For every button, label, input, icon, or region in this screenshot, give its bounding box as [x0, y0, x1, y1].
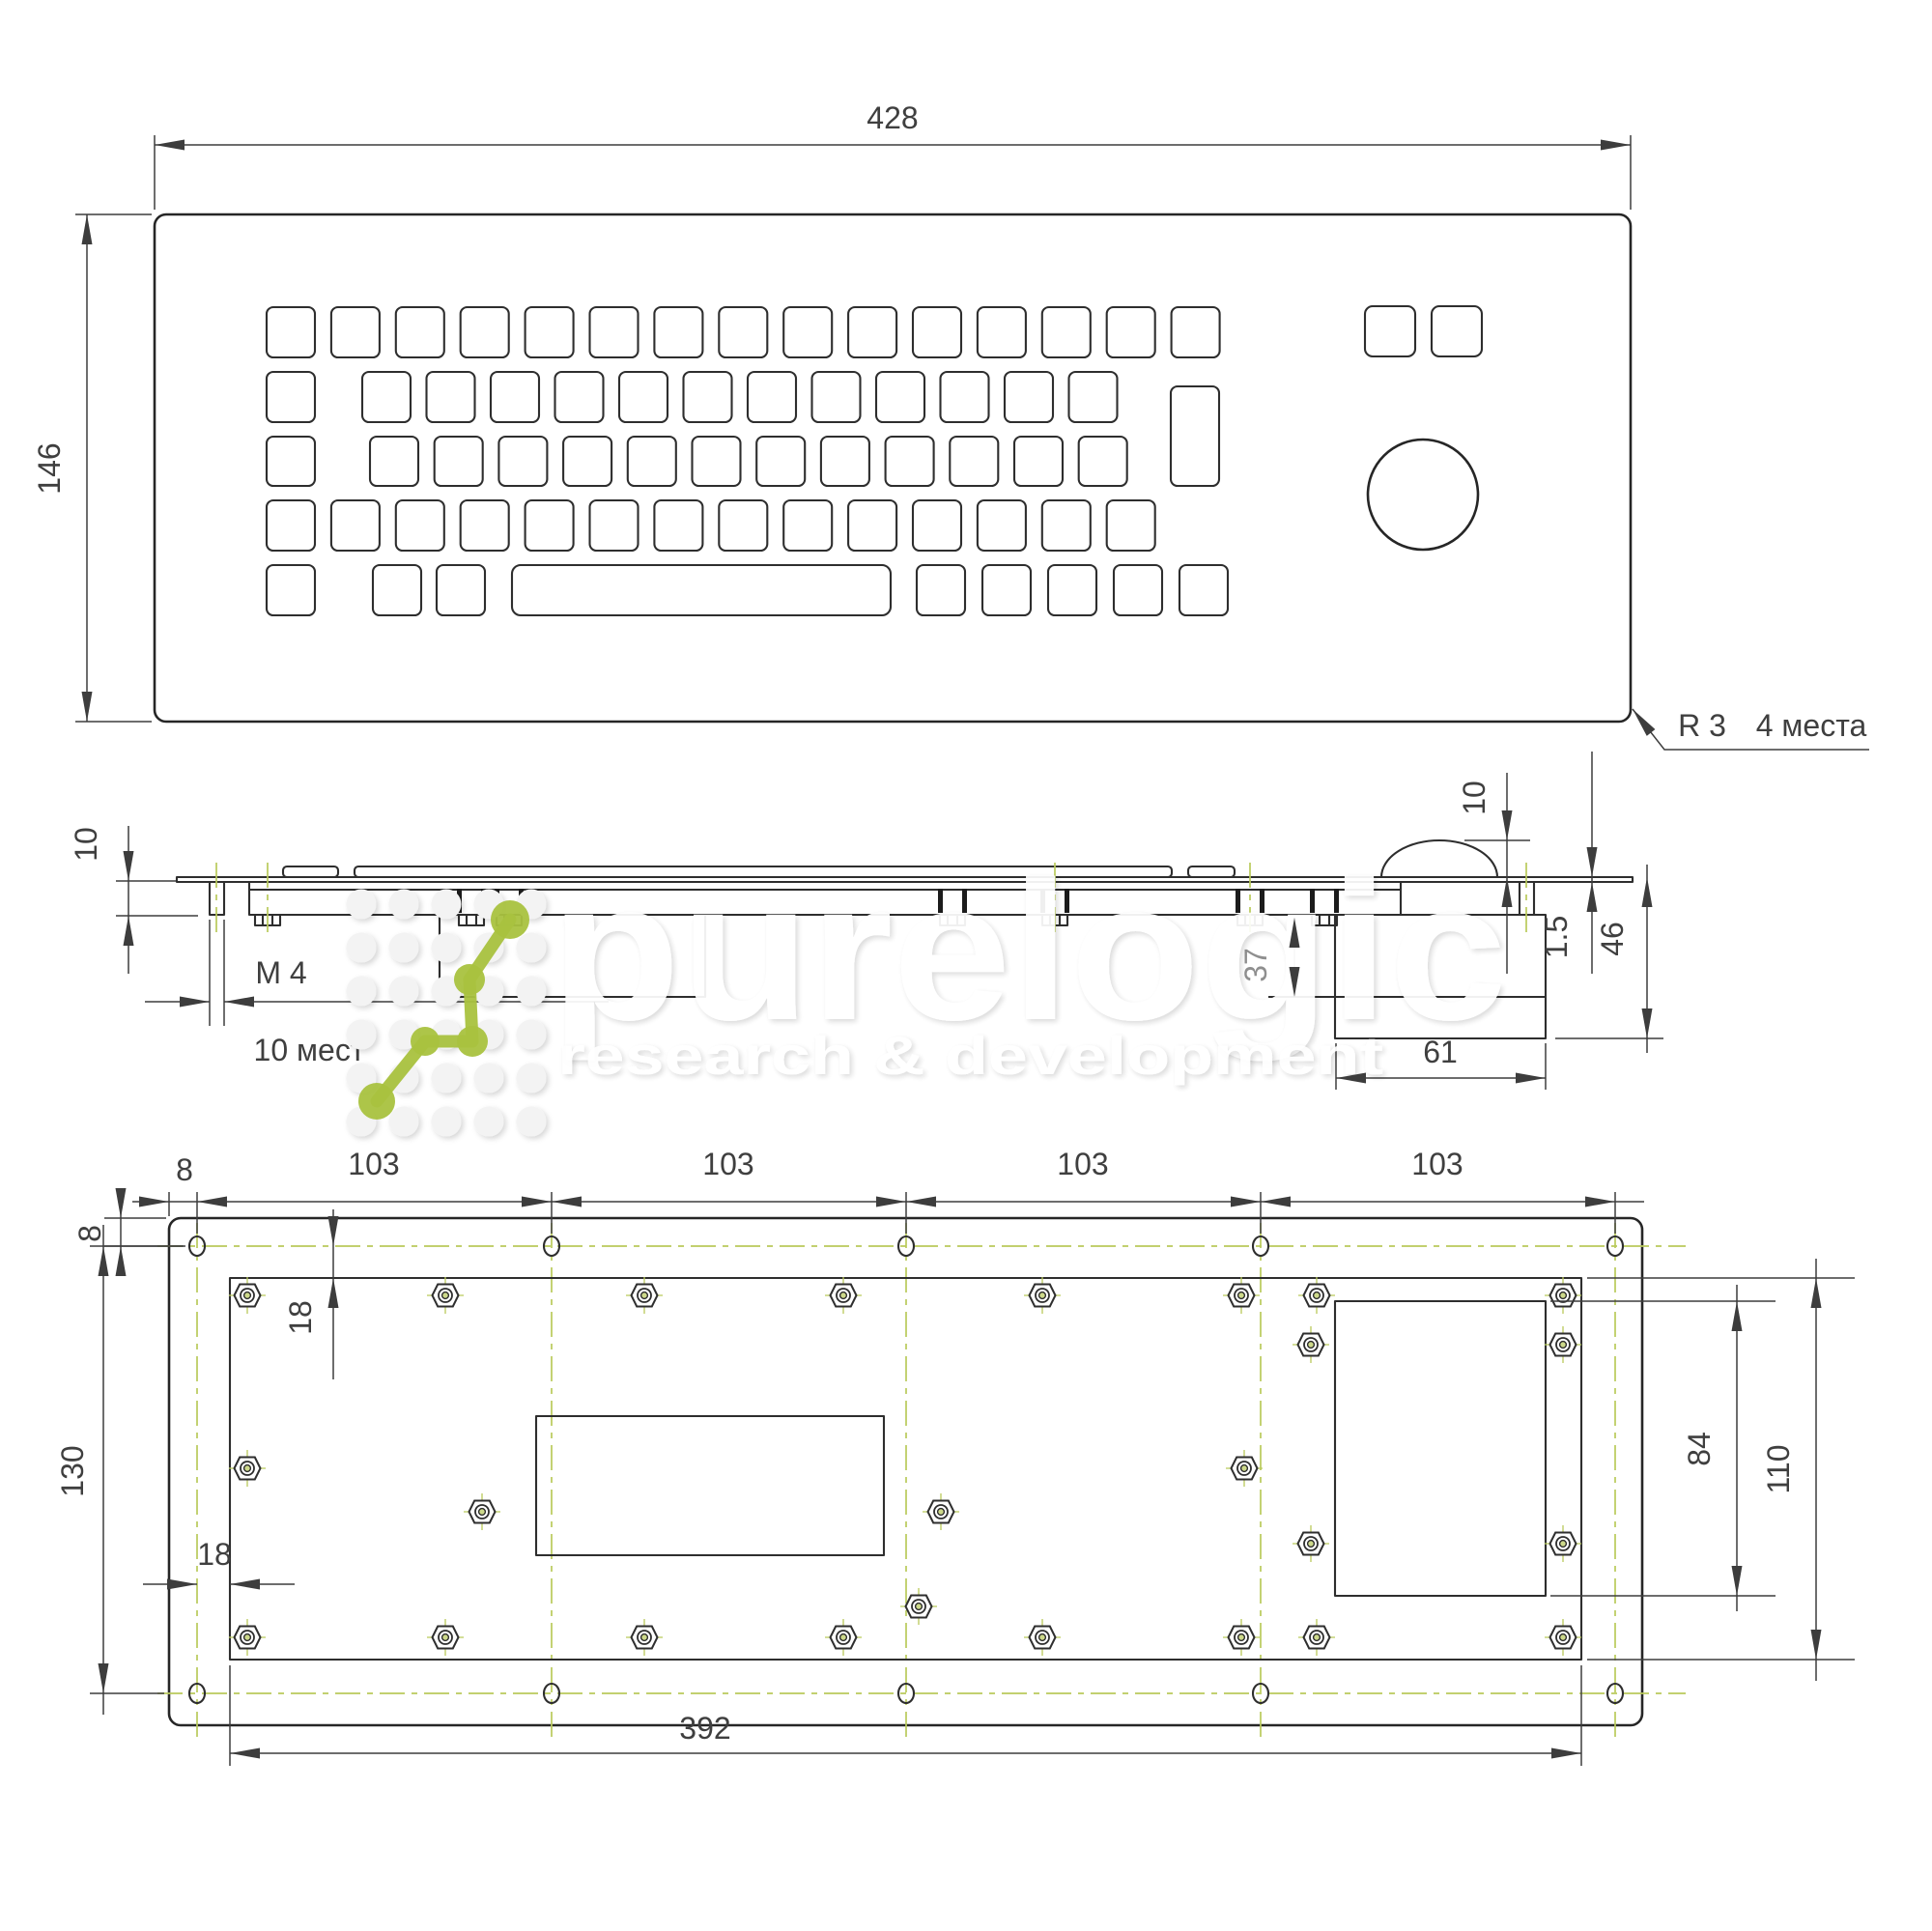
dim-label-10-left: 10	[69, 827, 103, 862]
dimension-arrowhead	[328, 1216, 339, 1246]
watermark-dot	[347, 977, 377, 1007]
key	[1079, 437, 1127, 486]
dimension-arrowhead	[552, 1197, 582, 1207]
dim-bottom-plate-offset-v: 18	[283, 1209, 333, 1379]
dimension-arrowhead	[1601, 140, 1631, 151]
key	[876, 372, 924, 422]
dim-bottom-plate-offset-h: 18	[143, 1537, 295, 1584]
hex-nut-center	[442, 1292, 449, 1299]
hex-nut-center	[442, 1634, 449, 1641]
watermark-dot	[517, 1107, 547, 1137]
hex-nut-center	[1560, 1541, 1567, 1548]
key	[362, 372, 411, 422]
key	[812, 372, 861, 422]
dimension-arrowhead	[167, 1579, 197, 1590]
dim-label-m4: M 4	[255, 955, 306, 990]
key	[396, 500, 444, 551]
key	[1172, 307, 1220, 357]
key	[1042, 500, 1091, 551]
key	[491, 372, 539, 422]
dimension-arrowhead	[124, 916, 134, 946]
watermark-chain-dot	[454, 964, 485, 995]
dimension-arrowhead	[1732, 1301, 1743, 1331]
dim-label-1-5: 1.5	[1539, 916, 1574, 958]
dim-label-103-1: 103	[348, 1147, 399, 1181]
hex-nut-center	[1560, 1292, 1567, 1299]
dimension-arrowhead	[328, 1278, 339, 1308]
dimension-arrowhead	[1642, 877, 1653, 907]
spacebar-key	[512, 565, 891, 615]
dimension-arrowhead	[230, 1579, 260, 1590]
key	[917, 565, 965, 615]
dimension-arrowhead	[1587, 882, 1598, 912]
dim-front-height: 146	[32, 214, 152, 722]
hex-nut-center	[840, 1634, 847, 1641]
key	[331, 500, 380, 551]
rear-connector-box	[1335, 1301, 1546, 1596]
keyboard-keys	[267, 307, 1228, 615]
watermark-chain-dot	[411, 1027, 440, 1056]
key	[748, 372, 796, 422]
dim-side-frame-depth: 10	[69, 826, 198, 974]
watermark-dot	[347, 1020, 377, 1050]
trackball	[1368, 440, 1478, 550]
key	[1107, 500, 1155, 551]
bottom-view: 8 103 103 103 103 8 130 18 18	[55, 1147, 1855, 1766]
dim-side-sheet: 1.5	[1539, 752, 1592, 974]
hex-nut-center	[479, 1509, 486, 1516]
mouse-button-left	[1365, 306, 1415, 356]
hex-nut-center	[244, 1465, 251, 1472]
hex-nut-center	[1241, 1465, 1248, 1472]
key	[370, 437, 418, 486]
key	[719, 307, 767, 357]
key	[396, 307, 444, 357]
dim-front-width: 428	[155, 100, 1631, 210]
corner-radius-note: R 3 4 места	[1633, 708, 1869, 750]
key	[848, 307, 896, 357]
key	[978, 307, 1026, 357]
watermark-dot	[432, 1064, 462, 1093]
watermark-chain-dot	[358, 1083, 395, 1120]
key	[913, 307, 961, 357]
key	[427, 372, 475, 422]
dimension-arrowhead	[1502, 810, 1513, 840]
key	[590, 500, 639, 551]
mouse-button-right	[1432, 306, 1482, 356]
key	[783, 500, 832, 551]
key	[498, 437, 547, 486]
dimension-arrowhead	[180, 997, 210, 1008]
dimension-arrowhead	[99, 1663, 109, 1693]
key	[950, 437, 998, 486]
key	[941, 372, 989, 422]
key	[1114, 565, 1162, 615]
dim-label-18-horizontal: 18	[197, 1537, 232, 1572]
key	[267, 437, 315, 486]
key	[1107, 307, 1155, 357]
hex-nut-center	[244, 1634, 251, 1641]
watermark-dot	[474, 1064, 504, 1093]
dim-bottom-plate-height: 110	[1587, 1259, 1855, 1681]
hex-nut-center	[641, 1292, 648, 1299]
key	[526, 307, 574, 357]
key	[684, 372, 732, 422]
key	[461, 500, 509, 551]
dimension-arrowhead	[155, 140, 185, 151]
dim-label-8-top: 8	[176, 1152, 193, 1187]
watermark-dot	[474, 1107, 504, 1137]
key	[886, 437, 934, 486]
hex-nut-center	[1314, 1292, 1321, 1299]
key	[373, 565, 421, 615]
key	[1179, 565, 1228, 615]
key	[1048, 565, 1096, 615]
dim-label-428: 428	[867, 100, 918, 135]
dimension-arrowhead	[1516, 1073, 1546, 1084]
watermark-dot	[517, 977, 547, 1007]
hex-nut-center	[938, 1509, 945, 1516]
dim-label-4-places: 4 места	[1756, 708, 1867, 743]
key	[1014, 437, 1063, 486]
dim-bottom-hole-span: 130	[55, 1225, 185, 1715]
key	[756, 437, 805, 486]
key	[461, 307, 509, 357]
dimension-arrowhead	[1629, 706, 1656, 736]
watermark-dot	[432, 1107, 462, 1137]
key	[978, 500, 1026, 551]
watermark-dot	[347, 890, 377, 920]
watermark-dot	[432, 933, 462, 963]
watermark-dot	[517, 1064, 547, 1093]
key	[331, 307, 380, 357]
watermark-dot	[517, 933, 547, 963]
watermark-dot	[517, 1020, 547, 1050]
dim-label-103-2: 103	[702, 1147, 753, 1181]
hex-nut-center	[1308, 1342, 1315, 1349]
dim-label-146: 146	[32, 442, 67, 494]
watermark-chain-dot	[457, 1026, 488, 1057]
key	[783, 307, 832, 357]
dimension-arrowhead	[124, 851, 134, 881]
key	[590, 307, 639, 357]
dimension-arrowhead	[1811, 1278, 1822, 1308]
watermark-dot	[389, 1107, 419, 1137]
dimension-arrowhead	[224, 997, 254, 1008]
dim-label-18-vertical: 18	[283, 1300, 318, 1335]
dimension-arrowhead	[99, 1246, 109, 1276]
dimension-arrowhead	[82, 214, 93, 244]
dim-label-10-right: 10	[1457, 781, 1492, 815]
dim-label-8-left: 8	[72, 1225, 107, 1242]
watermark-dot	[389, 890, 419, 920]
dimension-arrowhead	[1231, 1197, 1261, 1207]
dimension-arrowhead	[906, 1197, 936, 1207]
key	[848, 500, 896, 551]
dimension-arrowhead	[1732, 1566, 1743, 1596]
key	[1069, 372, 1118, 422]
front-panel-outline	[155, 214, 1631, 722]
key	[267, 307, 315, 357]
watermark-dot	[347, 933, 377, 963]
side-key-profile	[283, 866, 338, 877]
dimension-arrowhead	[197, 1197, 227, 1207]
key	[628, 437, 676, 486]
hex-nut-center	[1560, 1342, 1567, 1349]
dimension-arrowhead	[116, 1188, 127, 1218]
hex-nut-center	[1039, 1292, 1046, 1299]
watermark-tagline: research & development	[557, 1025, 1383, 1086]
key	[1171, 386, 1219, 486]
dimension-arrowhead	[1551, 1748, 1581, 1759]
key	[982, 565, 1031, 615]
key	[267, 372, 315, 422]
watermark: purelogic research & development	[347, 840, 1508, 1137]
dimension-arrowhead	[82, 692, 93, 722]
key	[693, 437, 741, 486]
key	[913, 500, 961, 551]
watermark-dot	[389, 933, 419, 963]
key	[437, 565, 485, 615]
dimension-arrowhead	[1585, 1197, 1615, 1207]
key	[654, 307, 702, 357]
hex-nut-center	[1238, 1292, 1245, 1299]
watermark-dot	[389, 977, 419, 1007]
hex-nut-center	[1560, 1634, 1567, 1641]
rear-panel-outline	[169, 1218, 1642, 1725]
dimension-arrowhead	[116, 1246, 127, 1276]
dimension-arrowhead	[1642, 1008, 1653, 1038]
watermark-dot	[432, 890, 462, 920]
dimension-arrowhead	[230, 1748, 260, 1759]
dim-label-84: 84	[1682, 1432, 1717, 1466]
dimension-arrowhead	[1811, 1630, 1822, 1660]
hex-nut-center	[1039, 1634, 1046, 1641]
dimension-arrowhead	[876, 1197, 906, 1207]
dimension-arrowhead	[139, 1197, 169, 1207]
key	[821, 437, 869, 486]
key	[526, 500, 574, 551]
dim-label-103-4: 103	[1411, 1147, 1463, 1181]
hex-nut-center	[1314, 1634, 1321, 1641]
dim-bottom-top-chain: 8 103 103 103 103	[132, 1147, 1644, 1234]
key	[435, 437, 483, 486]
dimension-arrowhead	[1261, 1197, 1291, 1207]
key	[1005, 372, 1053, 422]
rear-center-cutout	[536, 1416, 884, 1555]
front-view: 428 146 R 3 4 места	[32, 100, 1869, 750]
key	[1042, 307, 1091, 357]
dim-label-392: 392	[679, 1711, 730, 1746]
hex-nut-center	[916, 1604, 923, 1610]
hex-nut-center	[1238, 1634, 1245, 1641]
dim-label-46: 46	[1595, 922, 1630, 956]
key	[267, 565, 315, 615]
dim-label-130: 130	[55, 1445, 90, 1496]
key	[619, 372, 668, 422]
hex-nut-center	[840, 1292, 847, 1299]
dimension-arrowhead	[522, 1197, 552, 1207]
hex-nut-center	[244, 1292, 251, 1299]
key	[563, 437, 611, 486]
dim-bottom-edge-offset: 8	[72, 1190, 184, 1275]
key	[267, 500, 315, 551]
drawing-sheet: 428 146 R 3 4 места 10	[0, 0, 1932, 1931]
watermark-chain-dot	[491, 900, 529, 939]
hex-nut-center	[641, 1634, 648, 1641]
key	[654, 500, 702, 551]
dimension-arrowhead	[1587, 847, 1598, 877]
dim-label-110: 110	[1761, 1444, 1796, 1493]
dim-label-r3: R 3	[1678, 708, 1726, 743]
dim-label-103-3: 103	[1057, 1147, 1108, 1181]
key	[555, 372, 604, 422]
key	[719, 500, 767, 551]
hex-nut-center	[1308, 1541, 1315, 1548]
dim-bottom-box-height: 84	[1550, 1285, 1776, 1611]
